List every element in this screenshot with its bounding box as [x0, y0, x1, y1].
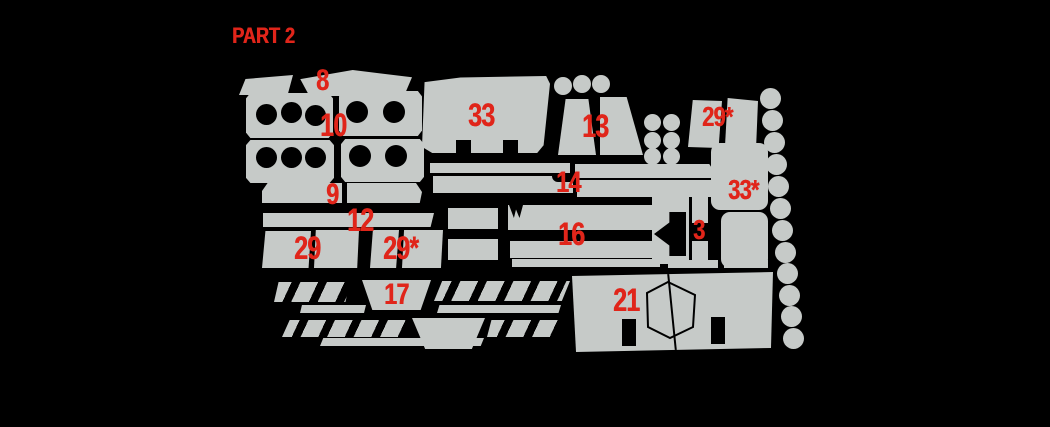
part-10-label: 10	[320, 109, 346, 141]
part-21-hexagon-scribe	[572, 272, 773, 352]
sheet-title: PART 2	[232, 25, 295, 47]
part-14-rail-2	[575, 164, 712, 178]
plate-hole	[385, 145, 407, 167]
small-disc	[783, 328, 804, 349]
small-disc	[644, 132, 661, 149]
part-17-stripes-top-right	[434, 281, 570, 301]
small-disc	[781, 306, 802, 327]
small-disc	[644, 148, 661, 165]
part-21-slot-right	[711, 317, 725, 344]
part-9-strip-right	[347, 183, 422, 203]
part-33star-label: 33*	[728, 176, 758, 204]
part-17-thin-bottom	[320, 338, 484, 346]
part-16-rail-bottom	[510, 241, 661, 258]
part-17-thin-top-right	[437, 305, 561, 313]
part-17-thin-top-left	[300, 305, 366, 313]
part-21-plate	[572, 272, 773, 352]
small-disc	[663, 114, 680, 131]
part-16-label: 16	[558, 218, 584, 250]
plate-hole	[346, 101, 368, 123]
small-disc	[770, 198, 791, 219]
small-disc	[766, 154, 787, 175]
part-8-label: 8	[316, 66, 328, 96]
small-disc	[554, 77, 572, 95]
part-3-label: 3	[693, 216, 704, 244]
part-29star-top-label: 29*	[702, 103, 732, 131]
part-17-label: 17	[384, 280, 408, 310]
part-9-label: 9	[326, 180, 338, 210]
plate-hole	[349, 145, 371, 167]
part-17-stripes-top-left	[274, 282, 350, 302]
small-disc	[592, 75, 610, 93]
part-29-label: 29	[294, 232, 320, 264]
part-14-rail-1	[430, 163, 570, 173]
plate-hole	[281, 102, 302, 123]
small-disc	[772, 220, 793, 241]
small-disc	[775, 242, 796, 263]
part-17-stripes-bottom-left	[282, 320, 410, 337]
part-14-label: 14	[556, 168, 580, 198]
part-33-label: 33	[468, 99, 494, 131]
part-12-label: 12	[347, 204, 373, 236]
part-29star-mid-label: 29*	[383, 232, 418, 264]
small-disc	[762, 110, 783, 131]
small-disc	[573, 75, 591, 93]
part-33-notch	[503, 140, 518, 153]
small-disc	[663, 148, 680, 165]
plate-hole	[305, 147, 326, 168]
small-disc	[760, 88, 781, 109]
part-16-block-2	[448, 239, 498, 260]
parts-sheet-diagram: PART 2 8 10 9 12 29 29* 33 13	[0, 0, 1050, 427]
small-disc	[768, 176, 789, 197]
small-disc	[764, 132, 785, 153]
part-16-thin-strip-1	[512, 259, 660, 267]
part-21-label: 21	[613, 284, 639, 316]
part-10-plate-r2c1	[246, 140, 334, 183]
part-17-stripes-bottom-right	[487, 320, 561, 337]
part-8-strip-left	[239, 75, 293, 95]
part-10-plate-r2c2	[341, 139, 424, 182]
small-disc	[644, 114, 661, 131]
part-13-label: 13	[582, 110, 608, 142]
part-10-plate-r1c2	[339, 91, 422, 136]
small-disc	[779, 285, 800, 306]
part-33-notch	[456, 140, 471, 153]
plate-hole	[256, 147, 277, 168]
small-disc	[777, 263, 798, 284]
part-21-slot-left	[622, 319, 636, 346]
part-16-block-1	[448, 208, 498, 229]
part-16-thin-strip-3	[724, 260, 768, 268]
plate-hole	[256, 104, 277, 125]
plate-hole	[383, 101, 405, 123]
small-disc	[663, 132, 680, 149]
plate-hole	[281, 147, 302, 168]
